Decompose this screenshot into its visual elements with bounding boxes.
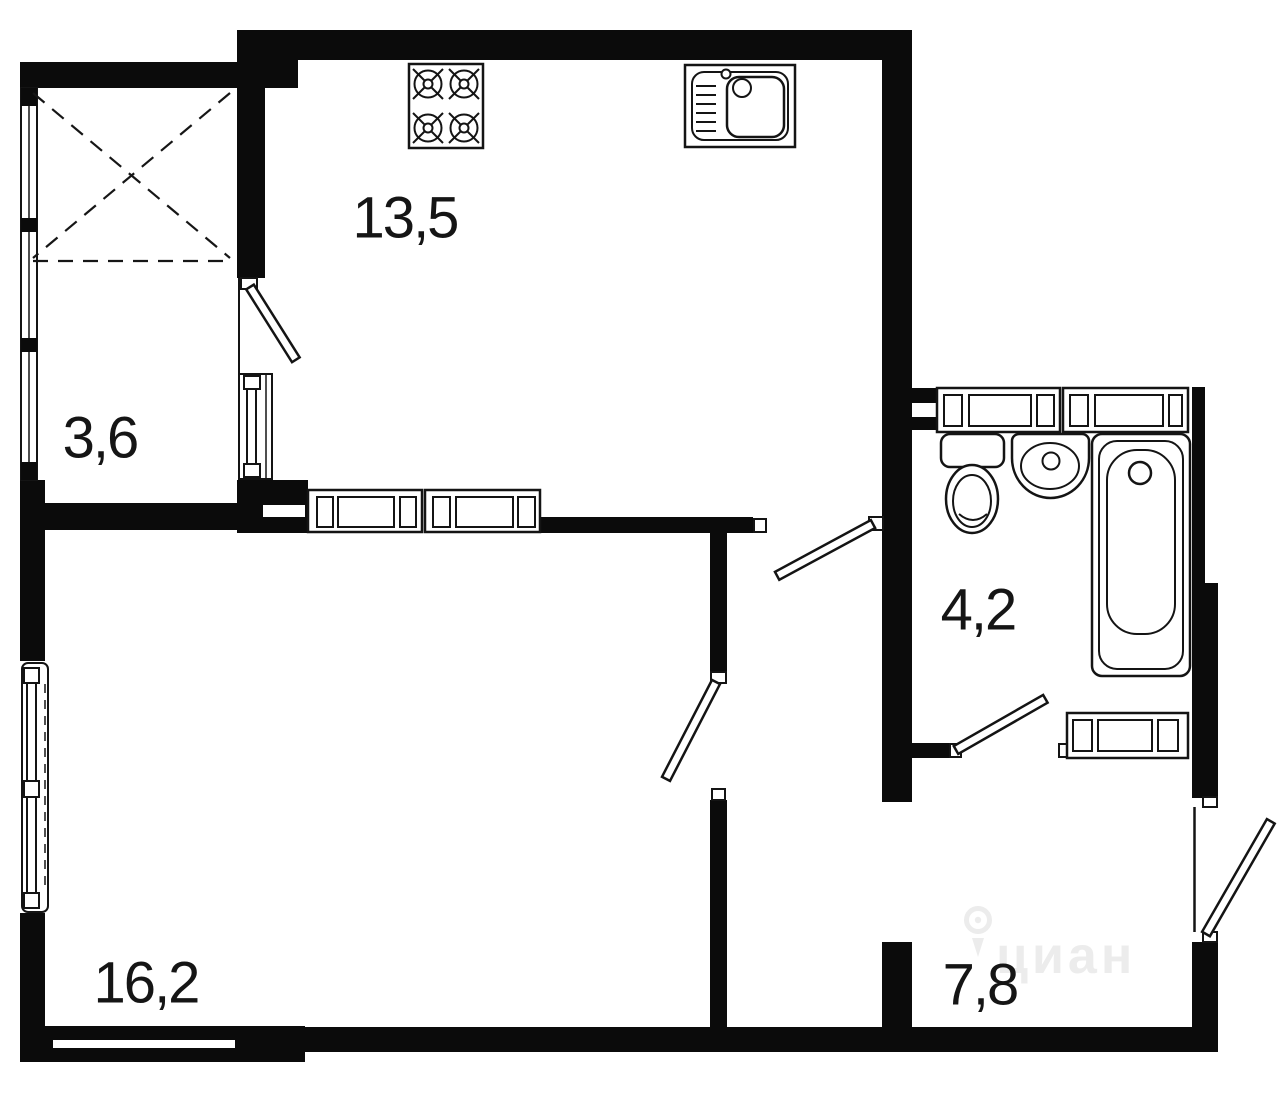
wall-segment <box>1192 583 1218 798</box>
loggia-glazing-window-icon <box>21 88 37 480</box>
door-leaf-icon <box>662 680 720 781</box>
bathroom-door <box>950 695 1048 757</box>
balcony-door <box>239 278 300 374</box>
wall-segment <box>20 480 45 661</box>
bathtub-icon <box>1092 434 1190 676</box>
wall-segment <box>237 30 912 60</box>
wall-segment <box>882 942 912 1027</box>
wall-segment <box>882 30 912 802</box>
wall-niche <box>263 505 305 517</box>
floor-plan: циан <box>0 0 1280 1101</box>
wall-segment <box>710 533 727 673</box>
kitchen-cabinets-icon <box>308 490 540 532</box>
wardrobe-cross-icon <box>33 93 230 261</box>
wall-segment <box>237 30 298 88</box>
wall-segment <box>237 88 265 278</box>
stove-icon <box>409 64 483 148</box>
floor-plan-graphics <box>0 0 1280 1101</box>
room-label-kitchen: 13,5 <box>353 185 458 252</box>
washbasin-icon <box>1012 434 1089 498</box>
wall-segment <box>540 517 753 533</box>
room-label-loggia: 3,6 <box>63 405 138 472</box>
wall-window-slit <box>53 1040 235 1048</box>
living-room-door <box>662 672 726 800</box>
kitchen-hall-door <box>775 517 883 580</box>
balcony-window-icon <box>239 374 272 479</box>
room-label-bathroom: 4,2 <box>941 577 1016 644</box>
wall-segment <box>908 743 952 758</box>
room-label-hallway: 7,8 <box>943 952 1018 1019</box>
kitchen-sink-icon <box>685 65 795 147</box>
door-leaf-icon <box>775 520 875 580</box>
wall-segment <box>25 503 262 530</box>
wall-segment <box>1192 387 1205 583</box>
wall-segment <box>710 800 727 1027</box>
toilet-icon <box>941 434 1004 533</box>
washer-cabinets-icon <box>937 388 1188 432</box>
door-leaf-icon <box>954 695 1048 754</box>
walls <box>20 30 1218 1062</box>
living-room-window-icon <box>22 663 48 912</box>
room-label-living-room: 16,2 <box>94 950 199 1017</box>
door-leaf-icon <box>246 285 299 363</box>
wall-segment <box>305 1027 1218 1052</box>
wall-segment <box>20 62 237 88</box>
door-jamb-cap <box>754 519 766 532</box>
wall-segment <box>912 388 937 403</box>
hall-cabinet-icon <box>1059 713 1188 758</box>
entrance-door <box>1195 797 1275 942</box>
wall-segment <box>912 417 937 430</box>
wall-segment <box>20 913 45 1062</box>
door-leaf-icon <box>1202 819 1275 936</box>
